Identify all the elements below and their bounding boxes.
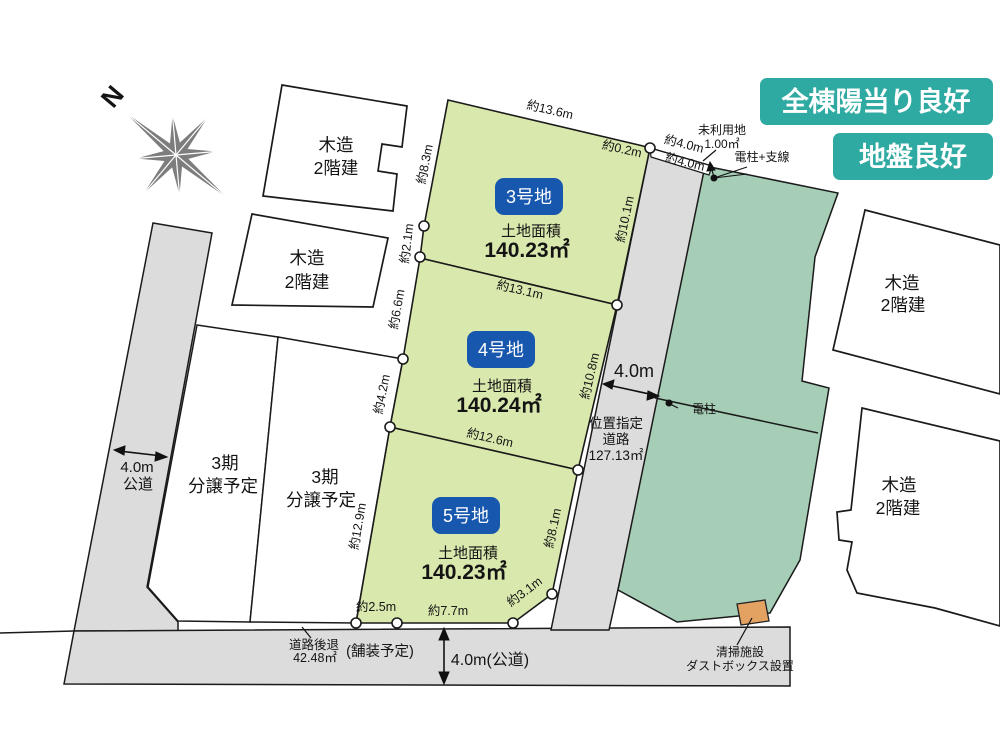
setback-label2: 42.48㎡ [293,651,337,665]
paving-label: (舗装予定) [346,643,414,660]
survey-point [385,422,395,432]
dustbox-label1: 清掃施設 [716,644,764,659]
promo-badges: 全棟陽当り良好 地盤良好 [760,78,993,180]
building-3-label2: 2階建 [881,295,926,315]
mid-road-label3: 127.13㎡ [589,448,644,463]
survey-point [645,143,655,153]
mid-road-label1: 位置指定 [589,416,643,431]
promo-badge-ground-label: 地盤良好 [859,141,967,172]
phase3-parcel-1-label: 3期 [211,453,238,473]
dim-left2: 約2.1m [397,223,417,265]
utility-pole-mid-label: 電柱 [692,401,716,416]
phase3-parcel-2-label: 3期 [311,467,338,487]
survey-point [508,618,518,628]
site-plan-drawing: N 全棟陽当り良好 地盤良好 3号地 土地面積 140.23㎡ 4号地 土地面積… [0,0,1000,751]
survey-point [392,618,402,628]
building-3-label: 木造 [885,273,920,293]
survey-point [415,252,425,262]
mid-road-width: 4.0m [614,361,654,381]
utility-pole-mid-dot [666,400,673,407]
compass-rose: N [95,80,227,198]
survey-point [419,221,429,231]
arrowhead [707,162,715,171]
survey-point [547,589,557,599]
bottom-road [64,627,790,686]
building-4-label2: 2階建 [876,498,921,518]
building-2-label2: 2階建 [285,272,330,292]
setback-label1: 道路後退 [289,637,340,652]
building-2-label: 木造 [290,248,325,268]
lot5-name: 5号地 [443,506,489,526]
survey-point [398,354,408,364]
compass-facet-seams [125,113,226,198]
dim-bottom1: 約2.5m [356,599,396,614]
building-1-label: 木造 [319,135,354,155]
left-road-width: 4.0m [120,459,153,476]
utility-pole-top-label: 電柱+支線 [734,149,789,164]
dim-bottom2: 約7.7m [428,603,468,618]
dim-left3: 約6.6m [386,288,408,330]
site-plan: N 全棟陽当り良好 地盤良好 3号地 土地面積 140.23㎡ 4号地 土地面積… [0,0,1000,751]
dustbox-shape [737,600,769,625]
unused-land-label2: 1.00㎡ [704,137,739,151]
survey-point [612,300,622,310]
lot5-area-value: 140.23㎡ [421,560,506,584]
lot3-area-value: 140.23㎡ [484,238,569,262]
lot4-name: 4号地 [478,340,524,360]
building-1-label2: 2階建 [314,158,359,178]
dim-top: 約13.6m [525,97,574,122]
phase3-parcel-2-label2: 分譲予定 [286,490,356,510]
bottom-road-line-extension [0,631,74,633]
compass-north-label: N [95,80,130,114]
unused-land-label1: 未利用地 [698,123,746,137]
survey-point [351,618,361,628]
lot4-area-label: 土地面積 [472,378,532,395]
bottom-road-width: 4.0m(公道) [451,651,529,669]
lot5-area-label: 土地面積 [438,545,498,562]
left-road-type: 公道 [123,476,153,493]
lot3-name: 3号地 [506,187,552,207]
building-4-label: 木造 [882,475,917,495]
dustbox-label2: ダストボックス設置 [686,658,794,673]
lot4-area-value: 140.24㎡ [456,393,541,417]
mid-road-label2: 道路 [603,432,631,447]
phase3-parcel-1-label2: 分譲予定 [188,476,258,496]
promo-badge-sunlight-label: 全棟陽当り良好 [781,86,971,117]
survey-point [573,465,583,475]
lot3-area-label: 土地面積 [501,223,561,240]
